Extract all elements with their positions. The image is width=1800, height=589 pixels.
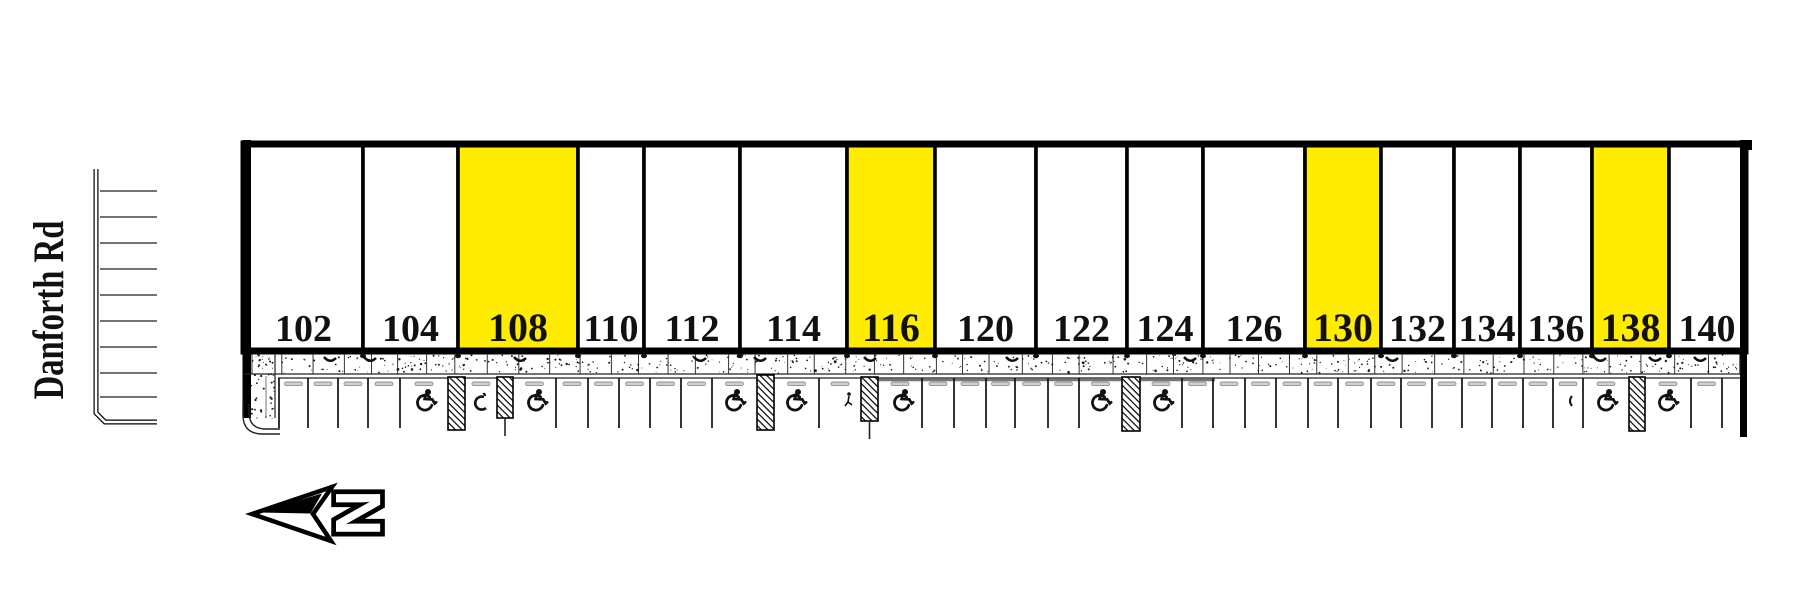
svg-text:112: 112: [665, 308, 720, 350]
svg-text:140: 140: [1679, 308, 1736, 350]
svg-text:136: 136: [1528, 308, 1585, 350]
svg-text:124: 124: [1137, 308, 1194, 350]
svg-text:Danforth Rd: Danforth Rd: [26, 221, 73, 400]
svg-text:102: 102: [275, 308, 332, 350]
svg-text:104: 104: [382, 308, 439, 350]
svg-text:122: 122: [1053, 308, 1110, 350]
svg-text:114: 114: [766, 308, 821, 350]
svg-text:N: N: [322, 490, 394, 536]
svg-text:120: 120: [957, 308, 1014, 350]
svg-text:130: 130: [1313, 305, 1373, 350]
svg-text:110: 110: [584, 308, 639, 350]
svg-text:132: 132: [1389, 308, 1446, 350]
svg-text:116: 116: [862, 305, 920, 350]
svg-text:138: 138: [1601, 305, 1661, 350]
svg-text:126: 126: [1226, 308, 1283, 350]
svg-text:108: 108: [488, 305, 548, 350]
svg-text:134: 134: [1459, 308, 1516, 350]
